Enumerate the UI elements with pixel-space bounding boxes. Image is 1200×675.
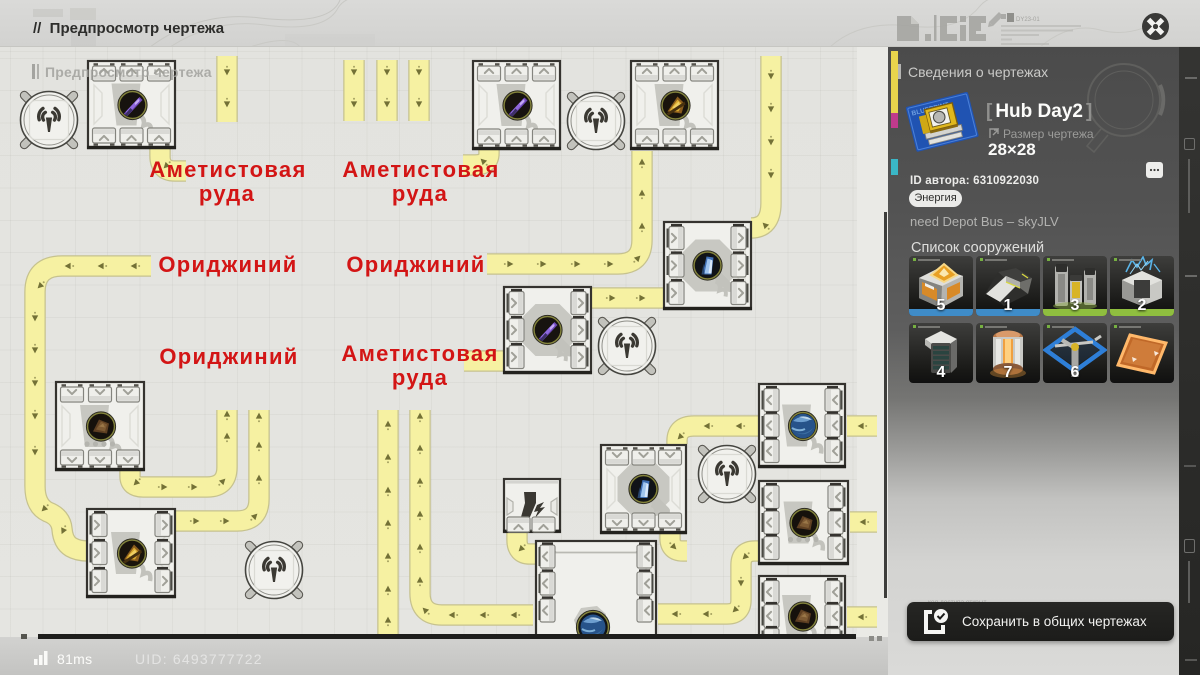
svg-text:Аметистовая: Аметистовая: [341, 341, 498, 366]
svg-text:руда: руда: [392, 365, 448, 390]
svg-text:Аметистовая: Аметистовая: [342, 157, 499, 182]
svg-text:Ориджиний: Ориджиний: [159, 344, 298, 369]
svg-text:Ориджиний: Ориджиний: [346, 252, 485, 277]
svg-text:DY23-01: DY23-01: [1016, 17, 1040, 23]
svg-text:Аметистовая: Аметистовая: [149, 157, 306, 182]
svg-text:руда: руда: [392, 181, 448, 206]
svg-text:Ориджиний: Ориджиний: [158, 252, 297, 277]
svg-text:руда: руда: [199, 181, 255, 206]
